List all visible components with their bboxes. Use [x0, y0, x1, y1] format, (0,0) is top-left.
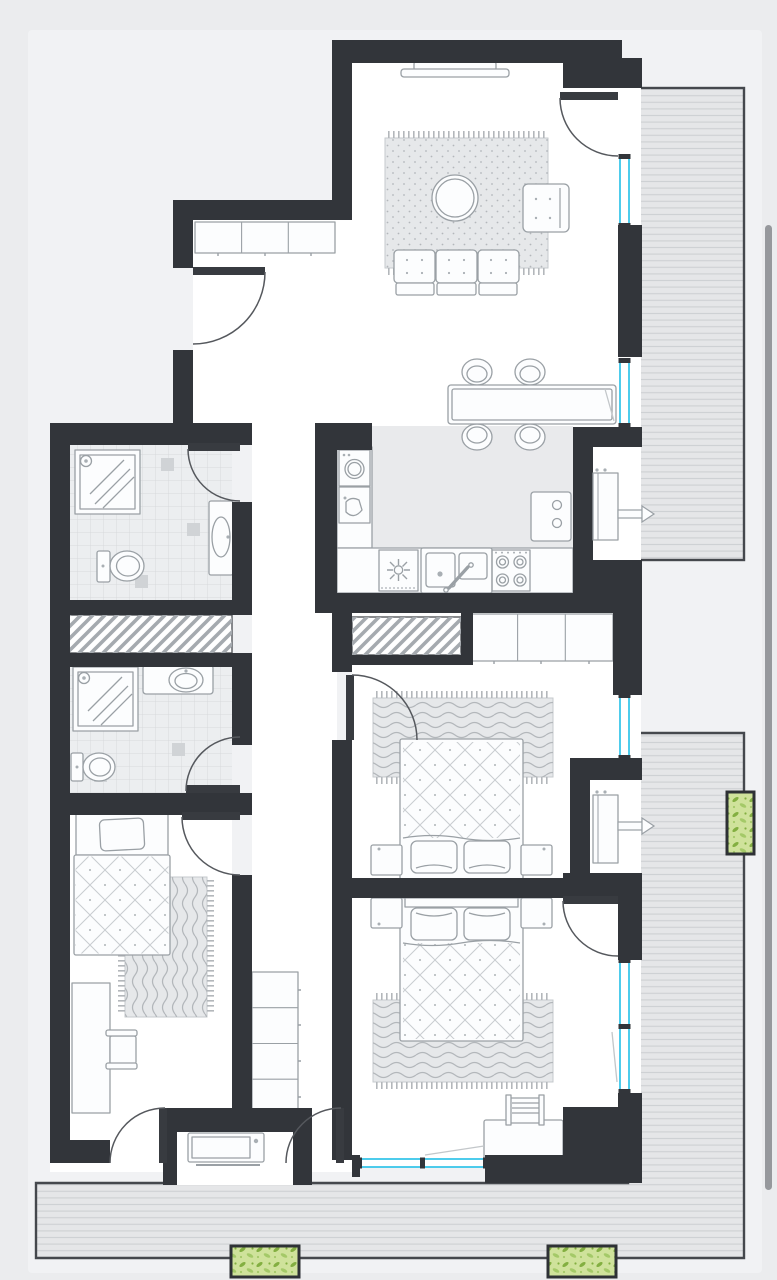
fridge-icon: [531, 492, 571, 541]
hall-wardrobe-icon: [252, 972, 301, 1115]
shower-icon: [75, 450, 140, 514]
dining-table-icon: [448, 385, 616, 424]
armchair-icon: [523, 184, 569, 232]
planter-icon: [548, 1246, 616, 1277]
dining-chair-icon: [462, 359, 492, 385]
nightstand-icon: [521, 898, 552, 928]
balcony-top-right: [628, 88, 744, 560]
toilet-icon: [97, 551, 144, 582]
scrollbar-thumb[interactable]: [765, 225, 772, 1190]
double-bed-icon: [400, 739, 523, 882]
chair-icon: [106, 1030, 137, 1069]
storage-unit-terrace-niche: [188, 1133, 264, 1165]
window-bedroom-2-side: [619, 958, 631, 1094]
planter-icon: [231, 1246, 299, 1277]
dining-chair-icon: [515, 359, 545, 385]
window-bedroom-2-bottom: [357, 1158, 488, 1169]
coffee-table-icon: [432, 175, 478, 221]
washbasin-icon: [209, 501, 233, 575]
wardrobe-icon: [470, 614, 613, 664]
shower-icon: [73, 667, 138, 731]
window-living: [619, 154, 631, 228]
entry-cabinets-icon: [195, 222, 335, 256]
dining-chair-icon: [462, 424, 492, 450]
nightstand-icon: [521, 845, 552, 875]
washbasin-icon: [143, 665, 213, 694]
single-bed-icon: [74, 813, 170, 955]
double-sink-icon: [421, 548, 492, 593]
nightstand-icon: [371, 845, 402, 875]
double-bed-icon: [400, 898, 523, 1041]
desk-icon: [484, 1120, 563, 1160]
chair-icon: [506, 1095, 544, 1125]
planter-icon: [727, 792, 754, 854]
floor-plan-stage: [0, 0, 777, 1280]
desk-icon: [72, 983, 110, 1113]
nightstand-icon: [371, 898, 402, 928]
sofa-icon: [394, 250, 519, 295]
toilet-icon: [71, 753, 115, 781]
dining-chair-icon: [515, 424, 545, 450]
floor-plan-drawing: [0, 0, 777, 1280]
window-bedroom-1: [619, 693, 631, 760]
utility-shaft-hatch: [352, 617, 461, 655]
window-dining: [619, 358, 631, 428]
utility-shaft-hatch: [68, 615, 232, 653]
